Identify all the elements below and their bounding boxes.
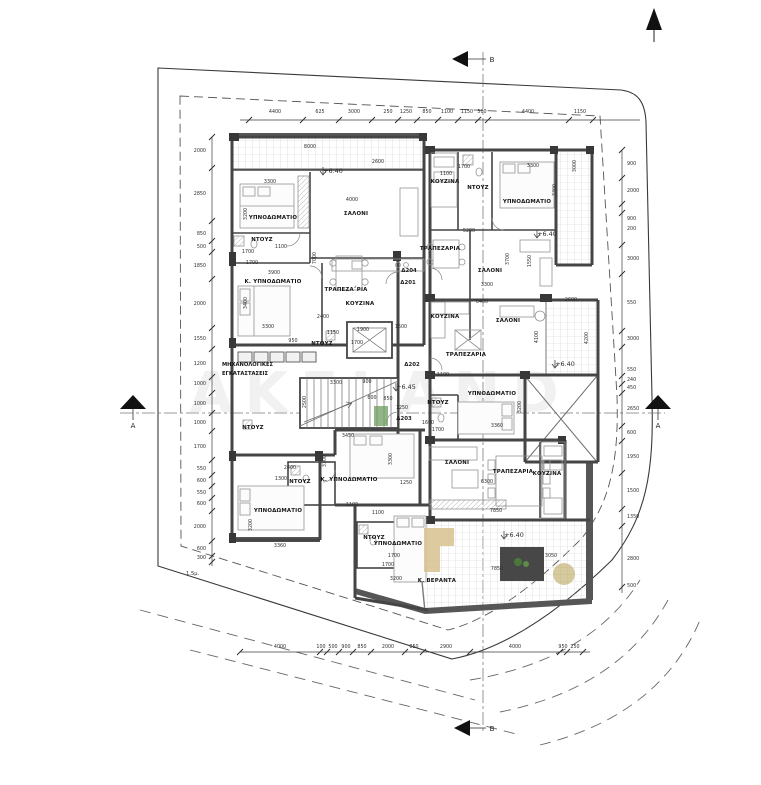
room-label: ΥΠΝΟΔΩΜΑΤΙΟ: [253, 508, 302, 514]
dimension-label: 1550: [527, 255, 533, 267]
dimension-label: 600: [197, 478, 206, 484]
dimension-label: 2600: [565, 297, 577, 303]
dimension-label: 2000: [382, 644, 394, 650]
level-label: +6.45: [396, 383, 416, 391]
utility-label: ΜΗΧΑΝΟΛΟΓΙΚΕΣ: [222, 362, 273, 368]
room-label: ΣΑΛΟΝΙ: [478, 268, 502, 274]
section-arrow-a-left: [120, 395, 146, 409]
dimension-label: 1700: [432, 427, 444, 433]
dimension-label: 3300: [552, 184, 558, 196]
section-letter: B: [490, 56, 495, 64]
dimension-label: 3300: [262, 324, 274, 330]
dimension-label: 2000: [194, 148, 206, 154]
dimension-label: 850: [422, 109, 431, 115]
dimension-label: 1600: [422, 420, 434, 426]
dimension-label: 3360: [491, 423, 503, 429]
dimension-label: 3700: [505, 253, 511, 265]
dimension-label: 4200: [584, 332, 590, 344]
dimension-label: 3900: [268, 270, 280, 276]
level-label: +6.40: [537, 230, 557, 238]
dimension-label: 1100: [346, 502, 358, 508]
room-label: ΝΤΟΥΖ: [467, 185, 489, 191]
dimension-label: 4400: [269, 109, 281, 115]
level-label: +6.40: [504, 531, 524, 539]
dimension-label: 900: [362, 379, 371, 385]
mechanical-units: [238, 352, 316, 362]
dimension-label: 3300: [322, 455, 328, 467]
north-arrow-icon: [646, 8, 662, 42]
dimension-label: 550: [197, 466, 206, 472]
dimension-label: 1300: [275, 476, 287, 482]
dimension-label: 4000: [509, 644, 521, 650]
dimension-label: 1100: [437, 372, 449, 378]
dimension-label: 1950: [627, 454, 639, 460]
dimension-label: 3300: [481, 282, 493, 288]
room-label: ΥΠΝΟΔΩΜΑΤΙΟ: [373, 541, 422, 547]
dimension-label: 3300: [388, 453, 394, 465]
dimension-label: 100: [316, 644, 325, 650]
dimension-label: 900: [627, 161, 636, 167]
room-label: ΣΑΛΟΝΙ: [445, 460, 469, 466]
dimension-label: 2850: [194, 191, 206, 197]
dimension-label: 240: [627, 377, 636, 383]
dimension-label: 1000: [194, 381, 206, 387]
dimension-label: 850: [357, 644, 366, 650]
room-label: ΣΑΛΟΝΙ: [496, 318, 520, 324]
dimension-label: 1150: [574, 109, 586, 115]
dimension-label: 1550: [194, 336, 206, 342]
dimension-label: 600: [197, 501, 206, 507]
dimension-label: 1100: [275, 244, 287, 250]
dimension-label: 2650: [627, 406, 639, 412]
dimension-label: 3000: [348, 109, 360, 115]
dimension-label: 900: [627, 216, 636, 222]
dimension-label: 1200: [194, 361, 206, 367]
dimension-label: 850: [383, 396, 392, 402]
dimension-label: 1500: [627, 488, 639, 494]
road-lines: [140, 580, 700, 745]
dimension-label: 250: [383, 109, 392, 115]
dimension-label: 1150: [327, 330, 339, 336]
section-letter: A: [131, 422, 136, 430]
dimension-label: 1700: [246, 260, 258, 266]
dimension-label: 3000: [572, 160, 578, 172]
door-tag: Δ202: [404, 362, 420, 368]
room-label: ΚΟΥΖΙΝΑ: [431, 314, 460, 320]
dimension-label: 500: [197, 244, 206, 250]
room-label: Κ. ΥΠΝΟΔΩΜΑΤΙΟ: [245, 279, 302, 285]
room-label: ΤΡΑΠΕΖΑ΅ΡΙΑ: [324, 286, 368, 293]
dimension-label: 3450: [342, 433, 354, 439]
dimension-label: 4400: [522, 109, 534, 115]
dimension-label: 6400: [476, 299, 488, 305]
dimension-label: 1900: [357, 327, 369, 333]
dims-top: 4400625300025012508501100115050044001150: [269, 109, 586, 115]
room-label: ΚΟΥΖΙΝΑ: [346, 301, 375, 307]
plant-icon: [553, 563, 575, 585]
room-label: ΝΤΟΥΖ: [289, 479, 311, 485]
dimension-label: 3400: [243, 297, 249, 309]
dimension-label: 2600: [372, 159, 384, 165]
section-arrow-b-top: [452, 51, 468, 67]
dimension-label: 7850: [490, 508, 502, 514]
dimension-label: 1000: [194, 401, 206, 407]
dimension-label: 1700: [194, 444, 206, 450]
dimension-label: 600: [367, 395, 376, 401]
dimension-label: 625: [315, 109, 324, 115]
dimension-label: 1350: [627, 514, 639, 520]
dimension-label: 4000: [346, 197, 358, 203]
dimension-label: 3300: [264, 179, 276, 185]
dimension-label: 2000: [627, 188, 639, 194]
veranda-table: [500, 547, 544, 581]
dimension-label: 3300: [527, 163, 539, 169]
dimension-label: 3200: [248, 519, 254, 531]
room-label: ΝΤΟΥΖ: [311, 341, 333, 347]
dimension-label: 3200: [517, 401, 523, 413]
level-label: +6.40: [555, 360, 575, 368]
dimension-label: 450: [627, 385, 636, 391]
room-label: ΤΡΑΠΕΖΑΡΙΑ: [420, 246, 461, 252]
room-label: ΝΤΟΥΖ: [427, 400, 449, 406]
dims-bottom: 4000100500900850200085029004000950250: [274, 644, 580, 650]
dimension-label: 200: [627, 226, 636, 232]
dimension-label: 900: [341, 644, 350, 650]
dimension-label: 500: [328, 644, 337, 650]
dimension-label: 850: [409, 644, 418, 650]
dimension-label: 3000: [627, 336, 639, 342]
door-tag: Δ201: [400, 280, 416, 286]
dimension-label: 300: [197, 555, 206, 561]
room-label: ΤΡΑΠΕΖΑΡΙΑ: [493, 469, 534, 475]
dimension-label: 8000: [304, 144, 316, 150]
dimension-label: 600: [627, 430, 636, 436]
dims-left: 2000285085050018502000155012001000100010…: [194, 148, 206, 561]
room-label: Κ. ΥΠΝΟΔΩΜΑΤΙΟ: [321, 477, 378, 483]
dimension-label: 850: [197, 231, 206, 237]
dimension-label: 1850: [194, 263, 206, 269]
dimension-label: 1700: [351, 340, 363, 346]
dimension-label: 2800: [627, 556, 639, 562]
door-tag: Δ204: [401, 268, 417, 274]
wardrobe: [298, 176, 309, 228]
dimension-label: 1500: [395, 324, 407, 330]
dimension-label: 550: [627, 300, 636, 306]
dimension-label: 2400: [317, 314, 329, 320]
room-label: ΥΠΝΟΔΩΜΑΤΙΟ: [502, 199, 551, 205]
dimension-label: 1700: [458, 164, 470, 170]
dimension-label: 1100: [372, 510, 384, 516]
room-label: ΥΠΝΟΔΩΜΑΤΙΟ: [248, 215, 297, 221]
room-label: ΚΟΥΖΙΝΑ: [533, 471, 562, 477]
dimension-label: 2400: [284, 465, 296, 471]
plant-icon: [514, 558, 522, 566]
room-label: ΣΑΛΟΝΙ: [344, 211, 368, 217]
dimension-label: 250: [570, 644, 579, 650]
dimension-label: 3200: [390, 576, 402, 582]
dimension-label: 3000: [627, 256, 639, 262]
dimension-label: 950: [558, 644, 567, 650]
dimension-label: 3360: [274, 543, 286, 549]
dimension-label: 2000: [194, 301, 206, 307]
dimension-label: 1700: [382, 562, 394, 568]
dimension-label: 550: [627, 367, 636, 373]
room-label: ΤΡΑΠΕΖΑΡΙΑ: [446, 352, 487, 358]
utility-label: ΕΓΚΑΤΑΣΤΑΣΕΙΣ: [222, 371, 269, 377]
dimension-label: 3050: [545, 553, 557, 559]
veranda-top-left: [233, 138, 423, 169]
section-arrow-a-right: [645, 395, 671, 409]
dimension-label: 2900: [440, 644, 452, 650]
setback-label: 1.5μ.: [186, 571, 200, 577]
room-label: ΝΤΟΥΖ: [242, 425, 264, 431]
dimension-label: 1250: [396, 405, 408, 411]
section-letter: A: [656, 422, 661, 430]
room-label: ΥΠΝΟΔΩΜΑΤΙΟ: [467, 391, 516, 397]
dimension-label: 1100: [441, 109, 453, 115]
dimension-label: 1250: [400, 480, 412, 486]
dimension-label: 500: [477, 109, 486, 115]
dimension-label: 4100: [534, 331, 540, 343]
room-label: Κ. ΒΕΡΑΝΤΑ: [418, 578, 457, 584]
dimension-label: 600: [197, 546, 206, 552]
dimension-label: 1700: [388, 553, 400, 559]
dimension-label: 5200: [463, 228, 475, 234]
dimension-label: 7000: [312, 252, 318, 264]
room-label: ΝΤΟΥΖ: [251, 237, 273, 243]
wardrobe: [430, 500, 506, 509]
section-arrow-b-bottom: [454, 720, 470, 736]
room-label: ΚΟΥΖΙΝΑ: [431, 179, 460, 185]
dimension-label: 4000: [274, 644, 286, 650]
room-label: ΝΤΟΥΖ: [363, 535, 385, 541]
elevator: [347, 322, 392, 358]
dimension-label: 1150: [461, 109, 473, 115]
door-tag: Δ203: [396, 416, 412, 422]
dimension-label: 1250: [400, 109, 412, 115]
dimension-label: 1700: [242, 249, 254, 255]
dimension-label: 1100: [440, 171, 452, 177]
dimension-label: 500: [627, 583, 636, 589]
entry-mat: [374, 406, 388, 426]
level-label: +6.40: [323, 167, 343, 175]
dimension-label: 2500: [302, 396, 308, 408]
dimension-label: 6300: [481, 479, 493, 485]
floor-plan-canvas: AKELAND: [0, 0, 761, 785]
dimension-label: 550: [197, 490, 206, 496]
dimension-label: 7850: [491, 566, 503, 572]
dimension-label: 950: [288, 338, 297, 344]
section-letter: B: [490, 725, 495, 733]
dimension-label: 1000: [194, 420, 206, 426]
dimension-label: 2000: [194, 524, 206, 530]
dimension-label: 3300: [330, 380, 342, 386]
